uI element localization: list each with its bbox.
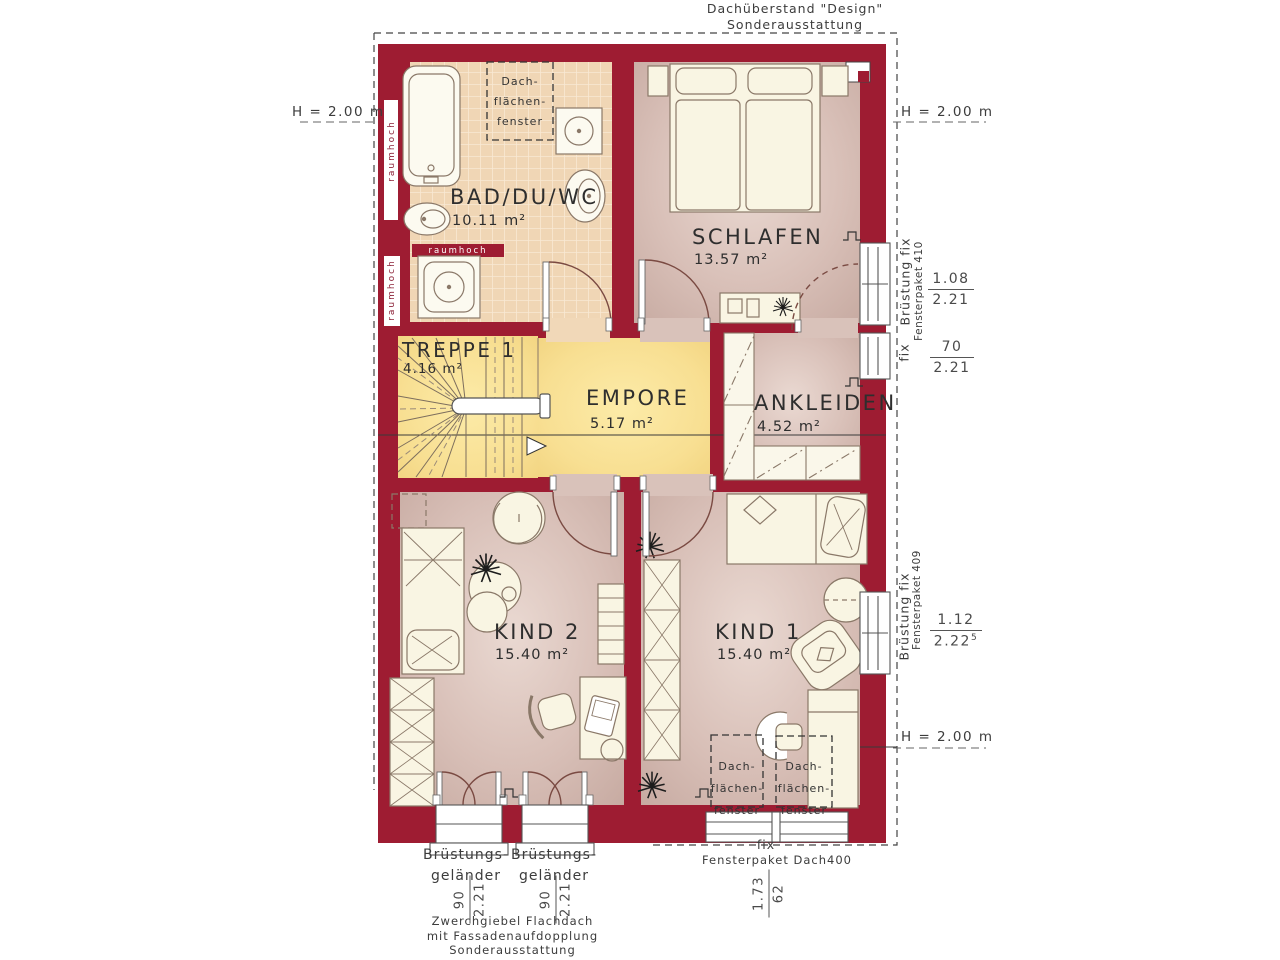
raumhoch-label-1: raumhoch (387, 111, 397, 191)
area-label-kind1: 15.40 m² (717, 647, 791, 663)
wardrobe-kind2 (390, 678, 434, 806)
package-label-410: Fensterpaket 410 (913, 236, 925, 346)
shower (418, 256, 480, 318)
chimney (846, 62, 870, 82)
height-label-right-bottom: H = 2.00 m (901, 729, 994, 745)
desk-kind2 (580, 677, 626, 761)
roof-overhang-note-line1: Dachüberstand "Design" (687, 1, 903, 17)
area-label-ankleiden: 4.52 m² (757, 419, 821, 435)
raumhoch-label-3: raumhoch (412, 246, 504, 256)
floor-plan: Dachüberstand "Design" Sonderausstattung… (0, 0, 1280, 960)
fix-label-410: fix (897, 333, 912, 373)
bathtub (403, 66, 460, 186)
sink-top (556, 108, 602, 154)
area-label-schlafen: 13.57 m² (694, 252, 768, 268)
area-label-kind2: 15.40 m² (495, 647, 569, 663)
fix-label-dach400: fix (748, 837, 784, 852)
roof-overhang-note-line2: Sonderausstattung (687, 17, 903, 33)
floor-plan-drawing (0, 0, 1280, 960)
room-label-schlafen: SCHLAFEN (692, 225, 823, 249)
double-bed (648, 64, 848, 212)
bed-kind1 (727, 494, 867, 564)
bed-kind2 (402, 528, 464, 674)
parapet-label-410: Brüstung fix (898, 227, 913, 337)
skylight-label-bad: Dach-flächen-fenster (485, 72, 555, 132)
bookshelf (598, 584, 624, 664)
dim-410-window2: 702.21 (930, 339, 974, 376)
window-410-upper (860, 243, 890, 325)
window-409 (860, 592, 890, 674)
window-410-lower (860, 333, 890, 379)
sideboard (720, 293, 800, 323)
skylight-label-kind1-right: Dach-flächen-fenster (772, 756, 836, 822)
height-label-left: H = 2.00 m (292, 104, 385, 120)
package-label-409: Fensterpaket 409 (911, 545, 923, 655)
skylight-label-kind1-left: Dach-flächen-fenster (707, 756, 767, 822)
gable-note: Zwerchgiebel Flachdachmit Fassadenaufdop… (420, 914, 605, 958)
round-chair (493, 492, 545, 544)
area-label-treppe: 4.16 m² (403, 361, 463, 377)
height-label-right-top: H = 2.00 m (901, 104, 994, 120)
area-label-empore: 5.17 m² (590, 416, 654, 432)
package-label-dach400: Fensterpaket Dach400 (702, 853, 852, 868)
room-label-kind2: KIND 2 (494, 620, 581, 644)
room-label-empore: EMPORE (586, 386, 689, 410)
room-label-bad: BAD/DU/WC (450, 185, 599, 209)
wardrobe-kind1 (644, 560, 680, 760)
dim-410-window1: 1.082.21 (928, 271, 974, 308)
room-label-treppe: TREPPE 1 (402, 338, 517, 362)
parapet-label-409: Brüstung fix (897, 562, 912, 672)
dim-dach400: 1.7362 (752, 870, 787, 918)
room-label-ankleiden: ANKLEIDEN (754, 391, 897, 415)
area-label-bad: 10.11 m² (452, 213, 526, 229)
raumhoch-label-2: raumhoch (387, 255, 397, 325)
toilet (404, 203, 450, 235)
dim-409-window: 1.12 2.225 (930, 612, 982, 650)
room-label-kind1: KIND 1 (715, 620, 802, 644)
